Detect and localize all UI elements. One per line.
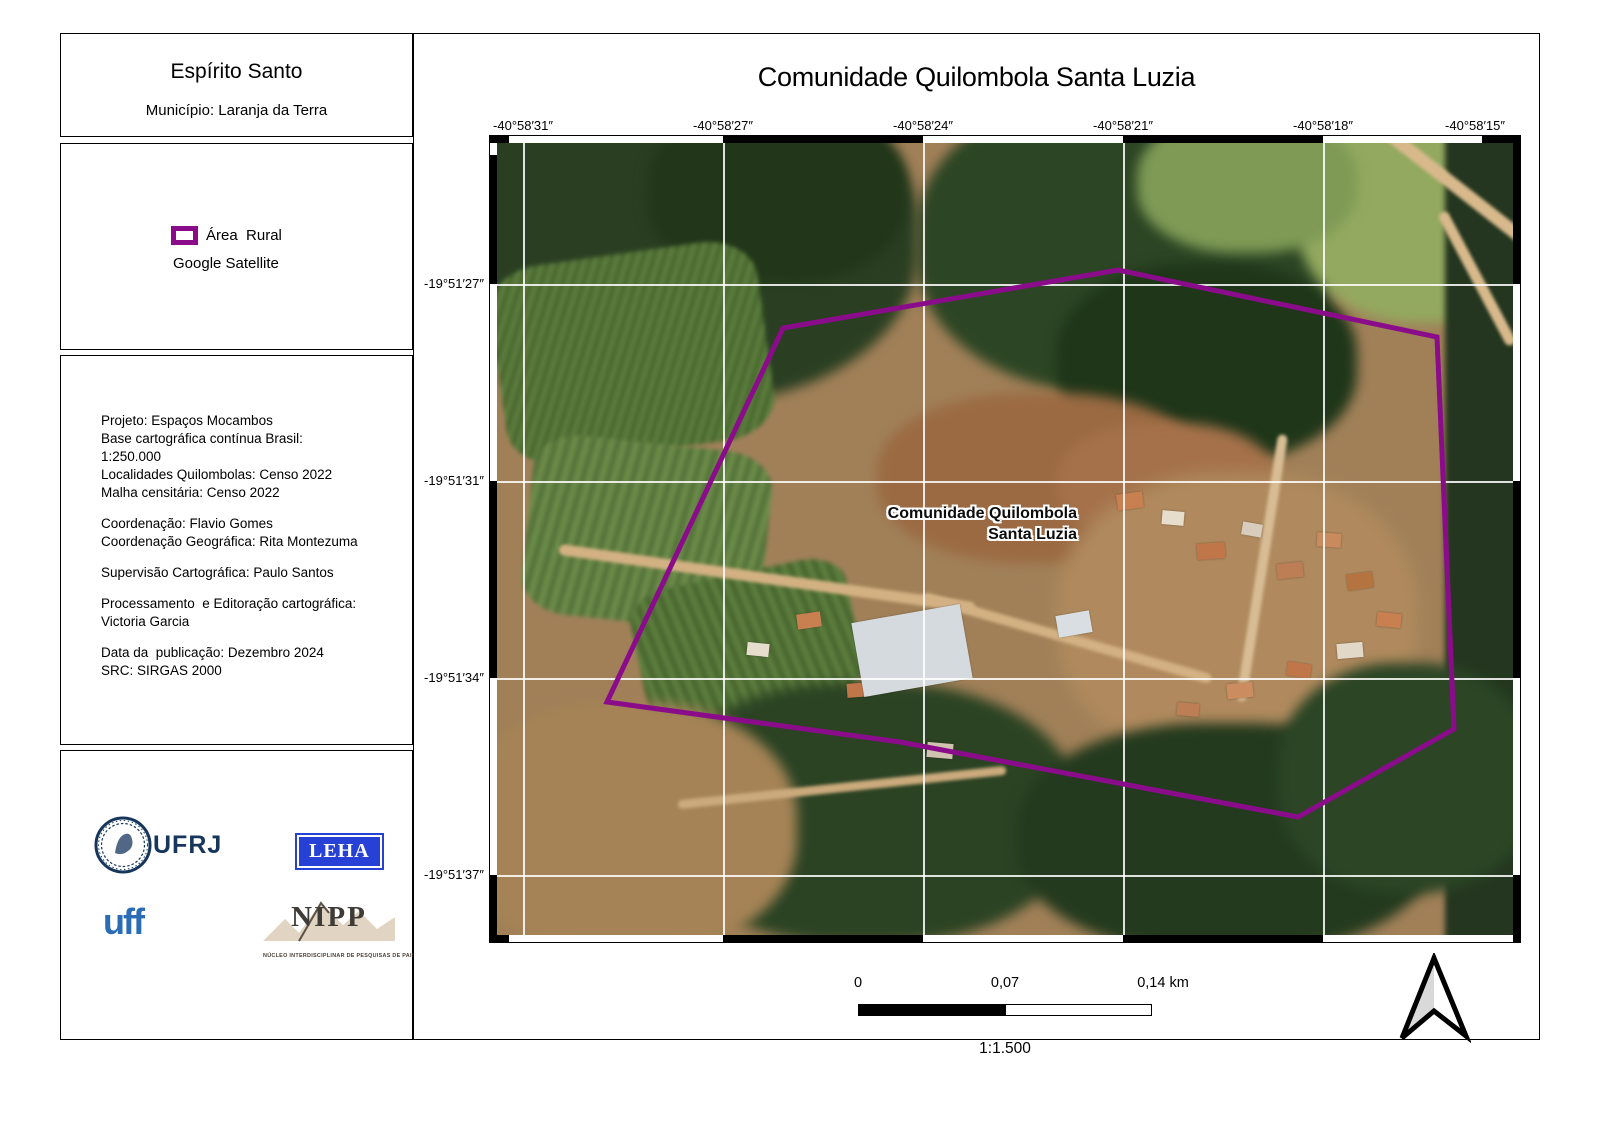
- map-layout-page: Espírito Santo Município: Laranja da Ter…: [0, 0, 1600, 1131]
- map-canvas: Comunidade Quilombola Santa Luzia: [497, 143, 1513, 935]
- credits-line: [101, 631, 398, 644]
- legend-box: Área Rural Google Satellite: [60, 143, 413, 350]
- credits-line: Supervisão Cartográfica: Paulo Santos: [101, 564, 398, 582]
- zebra-border-bottom: [497, 935, 1513, 942]
- area-rural-label: Área Rural: [206, 227, 282, 244]
- north-arrow-icon: [1397, 953, 1471, 1043]
- credits-line: 1:250.000: [101, 448, 398, 466]
- leha-logo: LEHA: [295, 833, 384, 870]
- scalebar-mid: 0,07: [991, 975, 1019, 991]
- longitude-tick-label: -40°58′27″: [693, 118, 753, 133]
- scalebar-segment-white: [1005, 1005, 1152, 1015]
- feature-label-line1: Comunidade Quilombola: [888, 503, 1077, 524]
- area-rural-swatch: [171, 226, 198, 245]
- latitude-tick-label: -19°51′27″: [424, 276, 484, 291]
- credits-line: Base cartográfica contínua Brasil:: [101, 430, 398, 448]
- credits-line: [101, 582, 398, 595]
- credits-line: Data da publicação: Dezembro 2024: [101, 644, 398, 662]
- credits-line: [101, 502, 398, 515]
- scalebar-segment-black: [859, 1005, 1005, 1015]
- nipp-logo: NIPP NÚCLEO INTERDISCIPLINAR DE PESQUISA…: [263, 893, 395, 959]
- uff-logo-text: uff: [103, 901, 143, 943]
- credits-line: [101, 551, 398, 564]
- leha-logo-text: LEHA: [299, 837, 380, 866]
- scalebar-zero: 0: [854, 975, 862, 991]
- credits-line: Coordenação: Flavio Gomes: [101, 515, 398, 533]
- map-frame: Comunidade Quilombola Santa Luzia: [489, 135, 1521, 943]
- credits-line: Coordenação Geográfica: Rita Montezuma: [101, 533, 398, 551]
- scalebar: [858, 1004, 1152, 1016]
- scale-ratio: 1:1.500: [858, 1040, 1152, 1058]
- ufrj-seal-icon: [93, 813, 153, 877]
- latitude-tick-label: -19°51′31″: [424, 473, 484, 488]
- credits-line: Localidades Quilombolas: Censo 2022: [101, 466, 398, 484]
- longitude-tick-label: -40°58′18″: [1293, 118, 1353, 133]
- nipp-logo-text: NIPP: [263, 901, 395, 934]
- credits-line: Processamento e Editoração cartográfica:: [101, 595, 398, 613]
- longitude-axis: -40°58′31″-40°58′27″-40°58′24″-40°58′21″…: [497, 118, 1513, 136]
- latitude-tick-label: -19°51′34″: [424, 670, 484, 685]
- nipp-logo-subtitle: NÚCLEO INTERDISCIPLINAR DE PESQUISAS DE …: [263, 953, 395, 959]
- feature-label-line2: Santa Luzia: [888, 524, 1077, 545]
- basemap-label: Google Satellite: [173, 255, 279, 272]
- municipality-label: Município: Laranja da Terra: [61, 102, 412, 119]
- longitude-tick-label: -40°58′15″: [1445, 118, 1505, 133]
- credits-line: Victoria Garcia: [101, 613, 398, 631]
- longitude-tick-label: -40°58′21″: [1093, 118, 1153, 133]
- credits-line: Projeto: Espaços Mocambos: [101, 412, 398, 430]
- latitude-tick-label: -19°51′37″: [424, 867, 484, 882]
- latitude-axis: -19°51′27″-19°51′31″-19°51′34″-19°51′37″: [398, 143, 484, 935]
- longitude-tick-label: -40°58′24″: [893, 118, 953, 133]
- credits-line: Malha censitária: Censo 2022: [101, 484, 398, 502]
- feature-label: Comunidade Quilombola Santa Luzia: [888, 503, 1077, 545]
- zebra-border-right: [1513, 143, 1520, 935]
- zebra-border-left: [490, 143, 497, 935]
- credits-line: SRC: SIRGAS 2000: [101, 662, 398, 680]
- state-title: Espírito Santo: [61, 60, 412, 84]
- zebra-border-top: [497, 136, 1513, 143]
- map-title: Comunidade Quilombola Santa Luzia: [413, 62, 1540, 93]
- sidebar-region-box: Espírito Santo Município: Laranja da Ter…: [60, 33, 413, 137]
- scalebar-end: 0,14 km: [1137, 975, 1189, 991]
- logos-box: UFRJ LEHA uff NIPP NÚCLEO INTERDISCIPLIN…: [60, 750, 413, 1040]
- longitude-tick-label: -40°58′31″: [493, 118, 553, 133]
- ufrj-logo-text: UFRJ: [153, 831, 222, 860]
- credits-text: Projeto: Espaços MocambosBase cartográfi…: [101, 412, 398, 680]
- credits-box: Projeto: Espaços MocambosBase cartográfi…: [60, 355, 413, 745]
